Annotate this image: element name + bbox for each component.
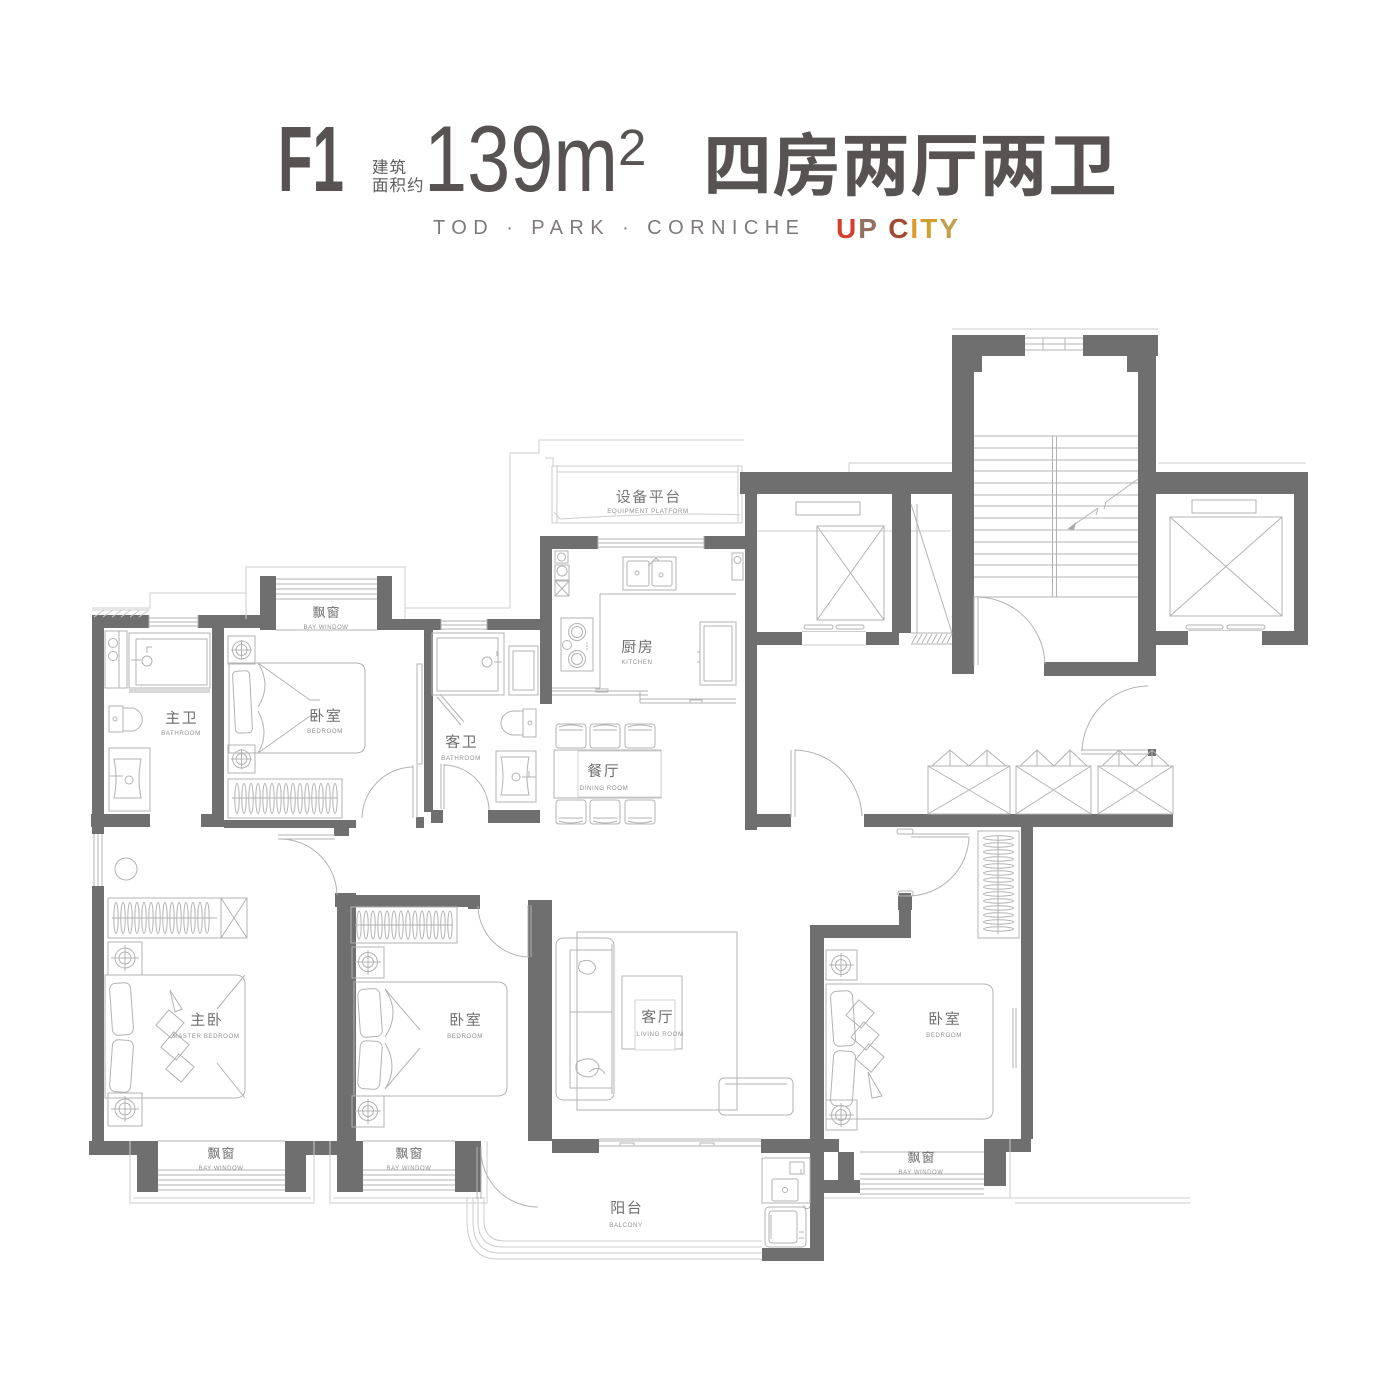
svg-text:2: 2 xyxy=(618,119,646,176)
svg-text:BAY WINDOW: BAY WINDOW xyxy=(199,1166,244,1172)
svg-text:LIVING ROOM: LIVING ROOM xyxy=(636,1031,683,1038)
svg-text:BATHROOM: BATHROOM xyxy=(441,755,481,762)
svg-text:F1: F1 xyxy=(278,107,344,211)
svg-text:BAY WINDOW: BAY WINDOW xyxy=(899,1170,944,1176)
svg-text:MASTER BEDROOM: MASTER BEDROOM xyxy=(172,1033,239,1040)
svg-text:BAY WINDOW: BAY WINDOW xyxy=(387,1166,432,1172)
svg-text:BEDROOM: BEDROOM xyxy=(447,1033,483,1040)
svg-text:EQUIPMENT PLATFORM: EQUIPMENT PLATFORM xyxy=(607,508,689,515)
svg-text:TOD · PARK · CORNICHE: TOD · PARK · CORNICHE xyxy=(433,217,807,239)
svg-text:BEDROOM: BEDROOM xyxy=(926,1032,962,1039)
svg-text:BALCONY: BALCONY xyxy=(609,1222,642,1229)
svg-text:BEDROOM: BEDROOM xyxy=(307,728,343,735)
svg-text:UP CITY: UP CITY xyxy=(836,213,960,244)
svg-text:BATHROOM: BATHROOM xyxy=(161,730,201,737)
svg-text:DINING ROOM: DINING ROOM xyxy=(580,785,629,792)
svg-text:BAY WINDOW: BAY WINDOW xyxy=(304,625,349,631)
svg-text:139m: 139m xyxy=(424,106,618,211)
svg-text:KITCHEN: KITCHEN xyxy=(621,659,652,666)
